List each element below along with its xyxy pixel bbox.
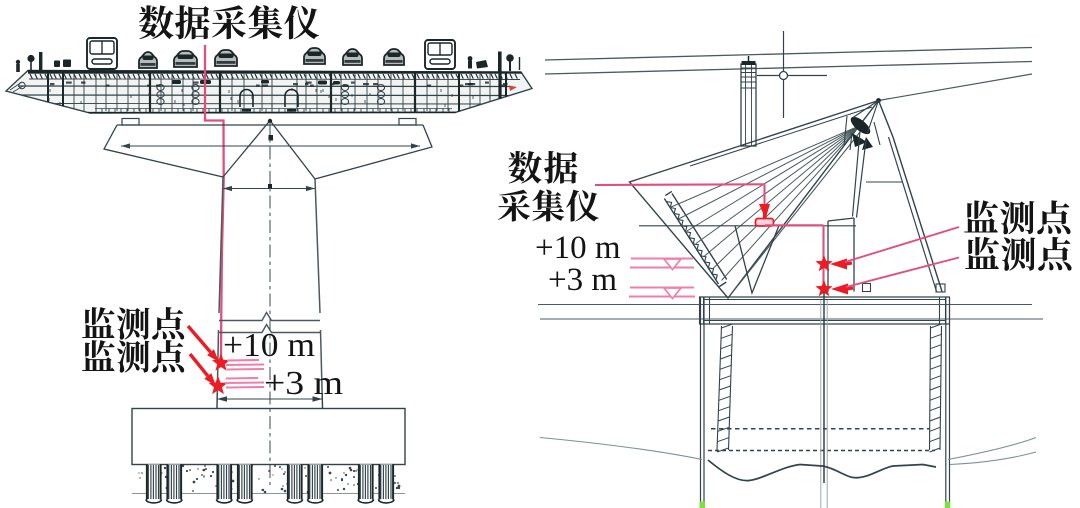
svg-text:+3 m: +3 m xyxy=(548,262,617,298)
svg-text:+3 m: +3 m xyxy=(264,365,343,402)
svg-text:+10 m: +10 m xyxy=(223,327,315,364)
svg-text:+10 m: +10 m xyxy=(535,230,621,266)
